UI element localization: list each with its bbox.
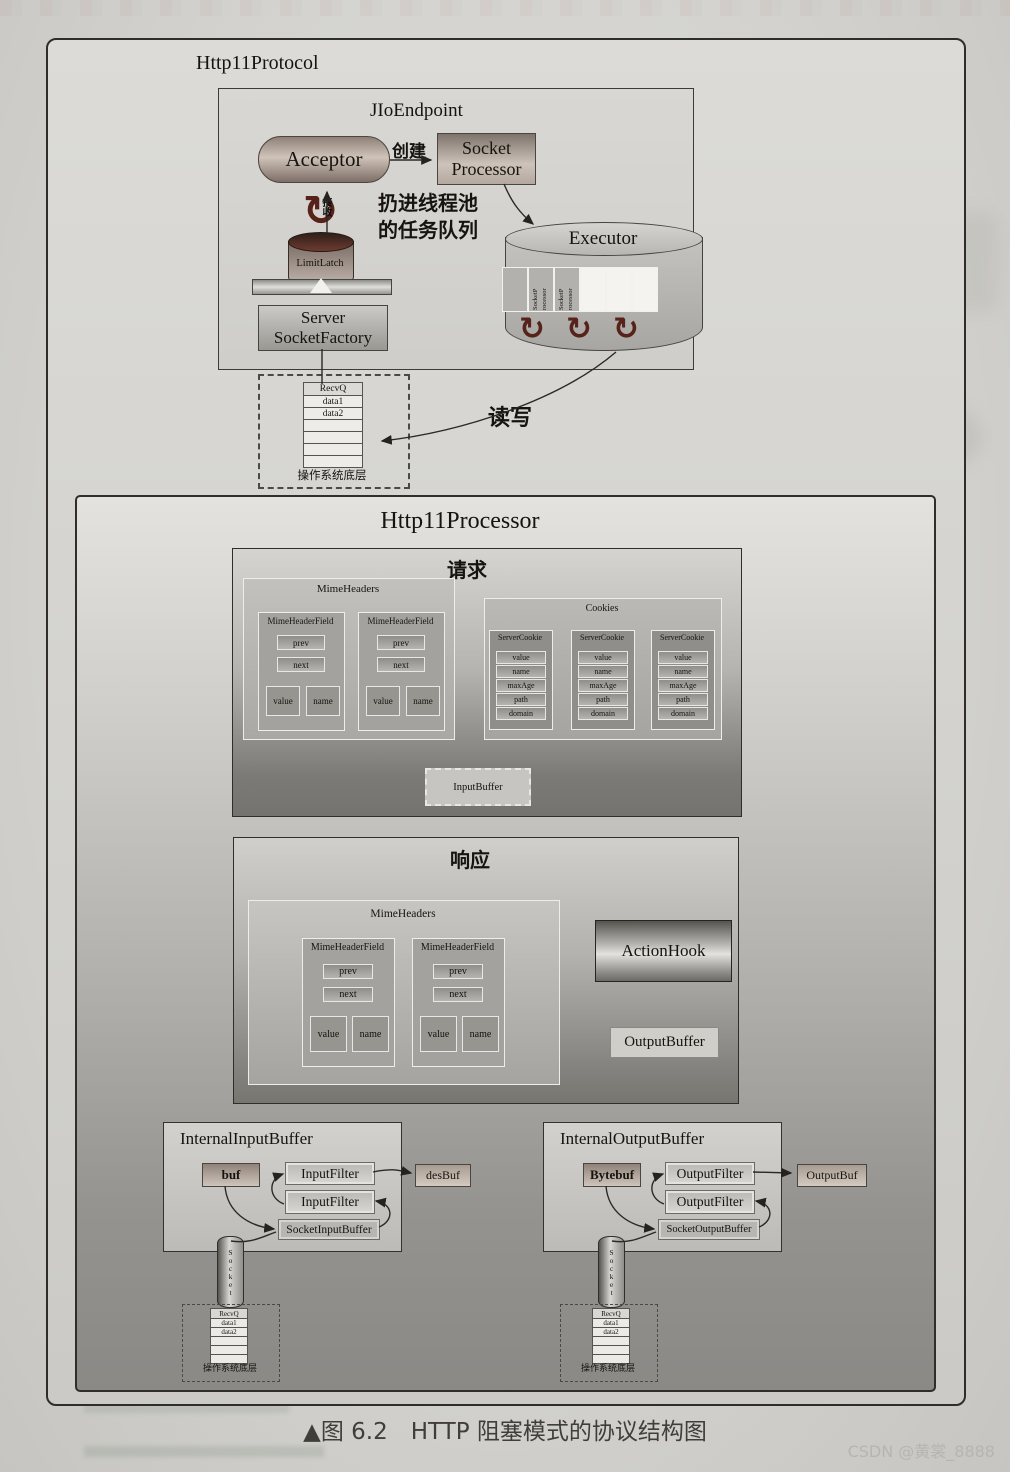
mhf-next: next [323, 987, 373, 1002]
executor-title: Executor [538, 228, 668, 250]
up-triangle-icon [310, 278, 332, 293]
recvq-table: RecvQ data1 data2 [303, 382, 363, 468]
sc-row: name [578, 665, 628, 678]
sc-row: domain [578, 707, 628, 720]
servercookie-title: ServerCookie [489, 633, 551, 642]
request-mimeheaders-title: MimeHeaders [243, 583, 453, 595]
sc-row: value [496, 651, 546, 664]
os-layer-label: 操作系统底层 [560, 1361, 656, 1374]
recvq-row [592, 1337, 630, 1346]
sc-row: path [496, 693, 546, 706]
mhf-next: next [433, 987, 483, 1002]
mhf-value: value [266, 686, 300, 716]
input-filter-box: InputFilter [285, 1190, 375, 1214]
recvq-row: data1 [303, 396, 363, 408]
enqueue-label: 扔进线程池 的任务队列 [378, 190, 478, 244]
server-socket-factory-node: Server SocketFactory [258, 305, 388, 351]
recvq-row [210, 1337, 248, 1346]
recvq-row: data1 [210, 1319, 248, 1328]
mhf-name: name [462, 1016, 499, 1052]
socket-processor-node: Socket Processor [437, 133, 536, 185]
recvq-table: RecvQ data1 data2 [592, 1308, 630, 1364]
output-filter-box: OutputFilter [665, 1190, 755, 1214]
mhf-next: next [277, 657, 325, 672]
outputbuffer-box: OutputBuffer [610, 1027, 719, 1058]
socket-output-buffer-box: SocketOutputBuffer [658, 1219, 760, 1240]
sc-row: path [578, 693, 628, 706]
mhf-prev: prev [377, 635, 425, 650]
output-socket-pipe-label: Socket [607, 1248, 616, 1296]
recvq-row [303, 432, 363, 444]
os-layer-label: 操作系统底层 [258, 467, 406, 483]
enqueue-label-line1: 扔进线程池 [378, 190, 478, 217]
input-filter-box: InputFilter [285, 1162, 375, 1185]
scanned-book-page: Http11Protocol JIoEndpoint Acceptor 创建 S… [0, 0, 1010, 1472]
buf-box: buf [202, 1163, 260, 1187]
task-queue-cell-text: SocketP rocessor [532, 270, 550, 310]
sc-row: name [658, 665, 708, 678]
recvq-row: RecvQ [210, 1308, 248, 1319]
task-queue-cell-empty [632, 267, 658, 312]
recvq-row [303, 444, 363, 456]
internal-input-buffer-title: InternalInputBuffer [180, 1129, 313, 1149]
recvq-row [210, 1346, 248, 1355]
task-queue-cell [502, 267, 528, 312]
mimeheaderfield-title: MimeHeaderField [258, 616, 343, 626]
task-queue-cell: SocketP rocessor [528, 267, 554, 312]
mhf-value: value [420, 1016, 457, 1052]
input-buffer-box: InputBuffer [425, 768, 531, 806]
bleed-artifact-code-lines [84, 1446, 324, 1457]
recvq-row: data2 [303, 408, 363, 420]
sc-row: maxAge [496, 679, 546, 692]
task-queue-cell-empty [606, 267, 632, 312]
recvq-row: data1 [592, 1319, 630, 1328]
servercookie-title: ServerCookie [571, 633, 633, 642]
executor-task-queue: SocketP rocessor SocketP rocessor [502, 267, 658, 312]
worker-thread-icon: ↻ [613, 314, 639, 345]
recvq-row [592, 1346, 630, 1355]
enqueue-label-line2: 的任务队列 [378, 217, 478, 244]
outputbuf-box: OutputBuf [797, 1164, 867, 1187]
sc-row: name [496, 665, 546, 678]
response-mimeheaders-panel [248, 900, 560, 1085]
mhf-prev: prev [433, 964, 483, 979]
socket-input-buffer-box: SocketInputBuffer [278, 1219, 380, 1240]
mhf-value: value [366, 686, 400, 716]
output-filter-box: OutputFilter [665, 1162, 755, 1185]
mhf-name: name [406, 686, 440, 716]
recvq-row: data2 [210, 1328, 248, 1337]
mhf-prev: prev [323, 964, 373, 979]
bleed-artifact-top-strip [0, 0, 1010, 16]
acceptor-node: Acceptor [258, 136, 390, 183]
limitlatch-label: LimitLatch [288, 258, 352, 269]
read-write-label: 读写 [488, 400, 532, 432]
servercookie-title: ServerCookie [651, 633, 713, 642]
mhf-value: value [310, 1016, 347, 1052]
mhf-name: name [306, 686, 340, 716]
task-queue-cell: SocketP rocessor [554, 267, 580, 312]
watermark: CSDN @黄裳_8888 [690, 1438, 995, 1462]
create-label: 创建 [392, 137, 426, 162]
worker-thread-icon: ↻ [519, 314, 545, 345]
sc-row: domain [496, 707, 546, 720]
recvq-row: RecvQ [592, 1308, 630, 1319]
sc-row: maxAge [578, 679, 628, 692]
cookies-title: Cookies [484, 603, 720, 614]
desbuf-box: desBuf [415, 1164, 471, 1187]
response-mimeheaders-title: MimeHeaders [248, 908, 558, 920]
input-socket-pipe-label: Socket [226, 1248, 235, 1296]
mimeheaderfield-title: MimeHeaderField [358, 616, 443, 626]
response-title: 响应 [233, 844, 707, 873]
sc-row: domain [658, 707, 708, 720]
mimeheaderfield-title: MimeHeaderField [412, 942, 503, 953]
recvq-row: RecvQ [303, 382, 363, 396]
worker-thread-icon: ↻ [566, 314, 592, 345]
mhf-prev: prev [277, 635, 325, 650]
actionhook-box: ActionHook [595, 920, 732, 982]
bytebuf-box: Bytebuf [583, 1163, 641, 1187]
mhf-name: name [352, 1016, 389, 1052]
os-layer-label: 操作系统底层 [182, 1361, 278, 1374]
http11processor-title: Http11Processor [260, 508, 660, 535]
sc-row: path [658, 693, 708, 706]
protocol-title: Http11Protocol [196, 52, 319, 75]
task-queue-cell-text: SocketP rocessor [558, 270, 576, 310]
recvq-row: data2 [592, 1328, 630, 1337]
limitlatch-cylinder-top [288, 232, 354, 252]
jioendpoint-title: JIoEndpoint [370, 100, 463, 122]
sc-row: value [658, 651, 708, 664]
task-queue-cell-empty [580, 267, 606, 312]
recvq-row [303, 420, 363, 432]
output-socket-pipe: Socket [598, 1236, 625, 1308]
internal-output-buffer-title: InternalOutputBuffer [560, 1129, 704, 1149]
mimeheaderfield-title: MimeHeaderField [302, 942, 393, 953]
sc-row: value [578, 651, 628, 664]
sc-row: maxAge [658, 679, 708, 692]
input-socket-pipe: Socket [217, 1236, 244, 1308]
recvq-table: RecvQ data1 data2 [210, 1308, 248, 1364]
receive-label: 接收 [318, 197, 333, 217]
mhf-next: next [377, 657, 425, 672]
